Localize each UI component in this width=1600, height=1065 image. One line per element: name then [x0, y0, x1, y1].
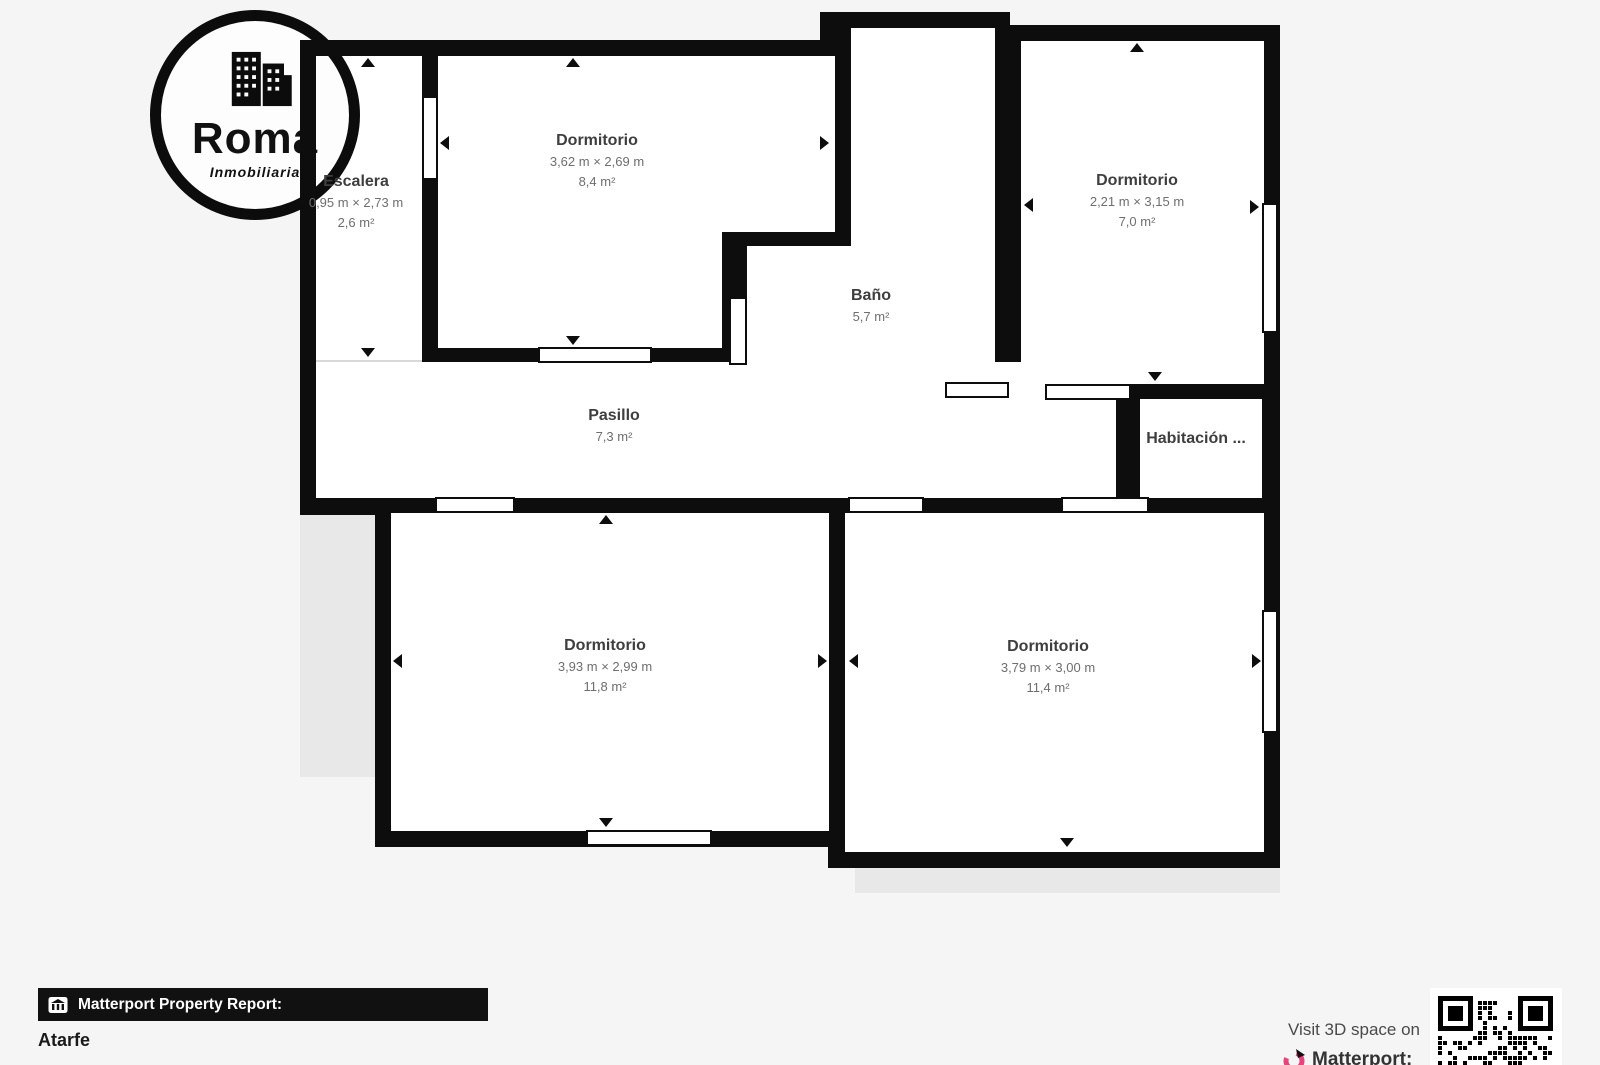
report-title-bar: Matterport Property Report: — [38, 988, 488, 1021]
door-dormitorio-top-right — [1045, 384, 1131, 400]
dimension-arrow-icon — [599, 515, 613, 524]
dimension-arrow-icon — [818, 654, 827, 668]
window-bano — [945, 382, 1009, 398]
room-name: Pasillo — [504, 404, 724, 427]
room-area: 2,6 m² — [246, 213, 466, 233]
dimension-arrow-icon — [1252, 654, 1261, 668]
dimension-arrow-icon — [1130, 43, 1144, 52]
room-label-bano: Baño 5,7 m² — [761, 284, 981, 327]
door-habitacion — [1061, 497, 1149, 513]
room-bano — [851, 28, 995, 246]
door-pasillo-dormitorio-bl — [435, 497, 515, 513]
dimension-arrow-icon — [393, 654, 402, 668]
dimension-arrow-icon — [1060, 838, 1074, 847]
dimension-arrow-icon — [1250, 200, 1259, 214]
dimension-arrow-icon — [849, 654, 858, 668]
room-area: 7,3 m² — [504, 427, 724, 447]
room-dimensions: 3,79 m × 3,00 m — [938, 658, 1158, 678]
room-boundary-line — [316, 360, 422, 362]
door-bano — [729, 297, 747, 365]
door-escalera-dormitorio — [422, 96, 438, 180]
window-dormitorio-bottom-left — [586, 830, 712, 846]
dimension-arrow-icon — [599, 818, 613, 827]
room-name: Habitación ... — [1086, 427, 1306, 450]
visit-3d-link[interactable]: Visit 3D space on — [1250, 1020, 1420, 1040]
property-name: Atarfe — [38, 1030, 90, 1051]
room-area: 5,7 m² — [761, 307, 981, 327]
report-building-icon — [48, 995, 68, 1015]
dimension-arrow-icon — [1148, 372, 1162, 381]
room-label-pasillo: Pasillo 7,3 m² — [504, 404, 724, 447]
room-name: Baño — [761, 284, 981, 307]
dimension-arrow-icon — [440, 136, 449, 150]
room-label-dormitorio-top-right: Dormitorio 2,21 m × 3,15 m 7,0 m² — [1027, 169, 1247, 231]
window-dormitorio-top-right — [1262, 203, 1278, 333]
room-area: 8,4 m² — [487, 172, 707, 192]
matterport-logo-icon — [1282, 1048, 1306, 1065]
room-label-habitacion: Habitación ... — [1086, 427, 1306, 450]
room-area: 7,0 m² — [1027, 212, 1247, 232]
room-area: 11,8 m² — [495, 677, 715, 697]
buildings-icon — [215, 50, 295, 113]
room-name: Dormitorio — [1027, 169, 1247, 192]
plan-shadow-bottom — [855, 868, 1280, 893]
report-title-text: Matterport Property Report: — [78, 996, 282, 1014]
room-name: Escalera — [246, 170, 466, 193]
qr-finder-icon — [1518, 996, 1553, 1031]
qr-finder-icon — [1438, 996, 1473, 1031]
window-dormitorio-bottom-right — [1262, 610, 1278, 733]
room-label-dormitorio-top: Dormitorio 3,62 m × 2,69 m 8,4 m² — [487, 129, 707, 191]
room-dimensions: 3,62 m × 2,69 m — [487, 152, 707, 172]
room-label-escalera: Escalera 0,95 m × 2,73 m 2,6 m² — [246, 170, 466, 232]
room-area: 11,4 m² — [938, 678, 1158, 698]
matterport-link[interactable]: Matterport: — [1282, 1048, 1412, 1065]
room-dimensions: 2,21 m × 3,15 m — [1027, 192, 1247, 212]
room-name: Dormitorio — [938, 635, 1158, 658]
room-label-dormitorio-bottom-right: Dormitorio 3,79 m × 3,00 m 11,4 m² — [938, 635, 1158, 697]
dimension-arrow-icon — [361, 348, 375, 357]
dimension-arrow-icon — [361, 58, 375, 67]
room-name: Dormitorio — [495, 634, 715, 657]
plan-shadow-left — [300, 515, 376, 777]
room-name: Dormitorio — [487, 129, 707, 152]
room-dormitorio-top — [438, 56, 722, 348]
matterport-brand-text: Matterport: — [1312, 1049, 1412, 1065]
qr-code — [1430, 988, 1562, 1065]
room-dimensions: 0,95 m × 2,73 m — [246, 193, 466, 213]
door-dormitorio-top — [538, 347, 652, 363]
floor-plan-page: Roma Inmobiliaria Escalera 0,95 m × 2,73… — [0, 0, 1600, 1065]
door-pasillo-dormitorio-br — [848, 497, 924, 513]
dimension-arrow-icon — [566, 58, 580, 67]
room-label-dormitorio-bottom-left: Dormitorio 3,93 m × 2,99 m 11,8 m² — [495, 634, 715, 696]
dimension-arrow-icon — [566, 336, 580, 345]
dimension-arrow-icon — [820, 136, 829, 150]
room-dimensions: 3,93 m × 2,99 m — [495, 657, 715, 677]
